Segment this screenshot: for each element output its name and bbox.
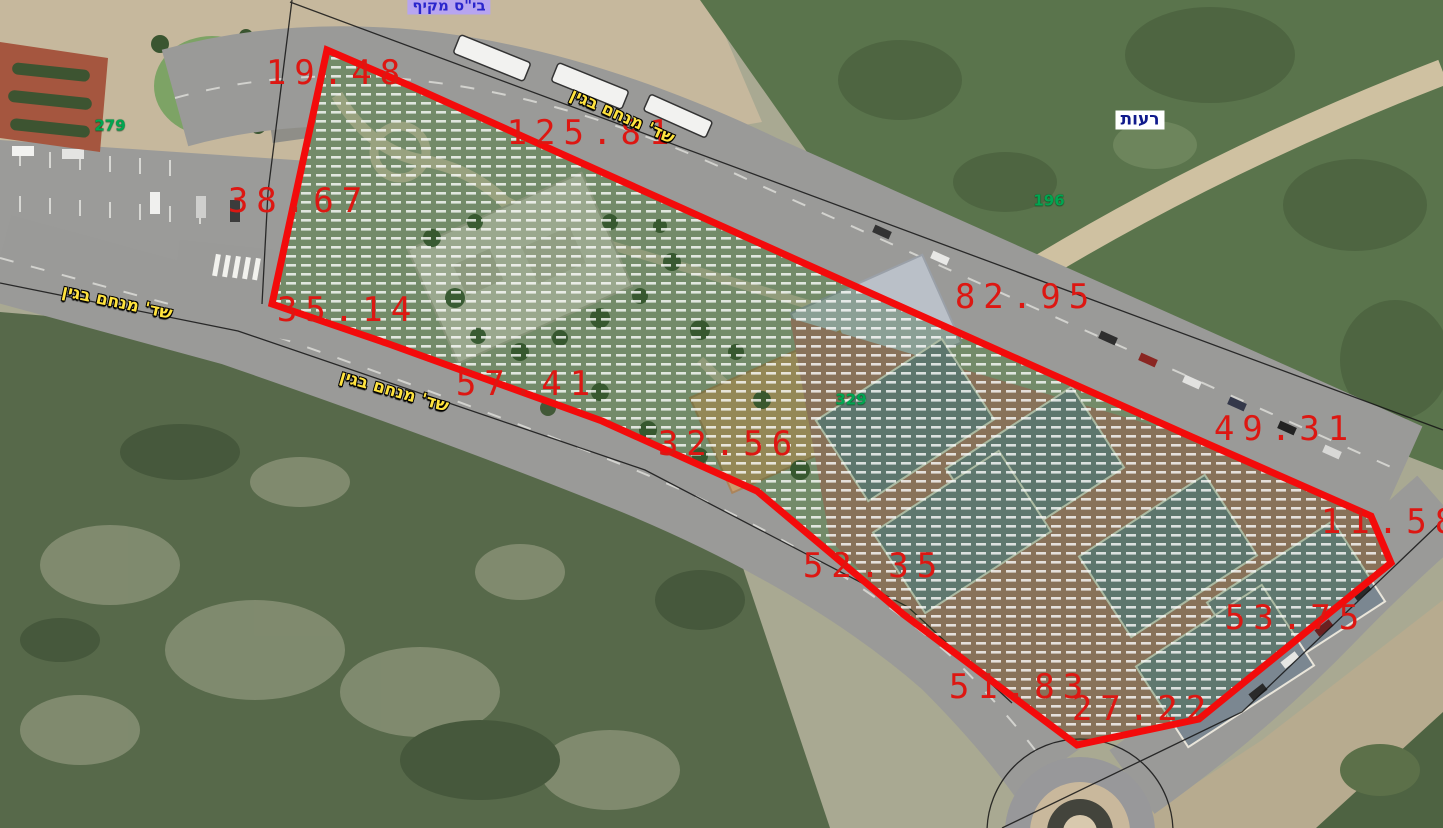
vegetation-blob xyxy=(1340,744,1420,796)
hedge-rows xyxy=(8,62,93,138)
vegetation-light-patch xyxy=(1113,121,1197,169)
map-viewport[interactable]: בי"ס מקיף רעות 19.48125.8138.6735.1457.4… xyxy=(0,0,1443,828)
aerial-photo-canvas xyxy=(0,0,1443,828)
